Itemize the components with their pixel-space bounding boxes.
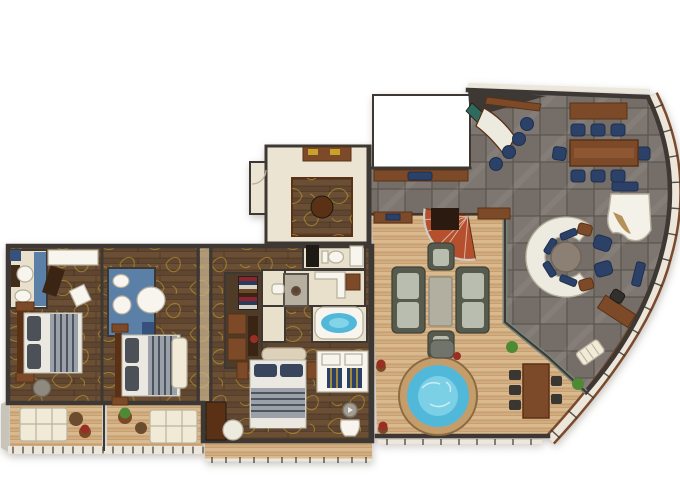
sofa-cushion <box>462 302 484 328</box>
outdoor-chair <box>509 385 521 395</box>
basin-sink <box>113 296 131 314</box>
dining-chair <box>571 170 585 182</box>
floor-plan-image <box>0 0 680 486</box>
tub-chair <box>341 420 360 436</box>
pillow <box>280 364 303 377</box>
guest-bed-2 <box>115 333 180 397</box>
outdoor-table <box>523 364 549 418</box>
sideboard-item <box>386 214 400 220</box>
toilet <box>329 251 344 263</box>
powder-vanity <box>350 246 363 266</box>
stool-cushion <box>347 368 362 388</box>
master-vanity <box>317 351 368 392</box>
dining-chair <box>637 147 650 160</box>
dining-chair <box>591 170 605 182</box>
dining-chair <box>571 124 585 136</box>
foyer-closet-floor <box>250 162 266 214</box>
dining-table-top <box>574 148 634 158</box>
foyer-sideboard-gold-item <box>308 149 318 155</box>
master-bed <box>250 348 306 428</box>
toilet <box>113 275 129 288</box>
hall-door-panel <box>272 284 284 294</box>
green-plant <box>572 378 584 390</box>
sofa-left <box>392 267 425 333</box>
sofa-cushion <box>397 273 419 299</box>
desk-chair <box>223 420 243 440</box>
sofa-cushion <box>397 302 419 328</box>
toilet <box>15 290 31 302</box>
round-coffee-table <box>551 242 581 272</box>
hallway-runner <box>200 248 209 401</box>
master-desk <box>206 402 226 440</box>
coffee-table <box>429 277 452 326</box>
entry-door-mat <box>306 245 319 267</box>
pillow <box>27 316 41 341</box>
clothes-item <box>239 277 257 281</box>
writing-desk <box>172 338 187 388</box>
nightstand <box>112 324 128 332</box>
floor-plan-page <box>0 0 680 486</box>
bathroom-shelf <box>346 274 360 290</box>
outdoor-chair <box>551 394 562 404</box>
stair-landing <box>431 208 459 230</box>
clothes-item <box>239 285 257 289</box>
sun-lounger <box>20 408 67 441</box>
green-plant <box>506 341 518 353</box>
clothes-item <box>239 305 257 309</box>
stool-cushion <box>327 368 342 388</box>
galley-void <box>373 95 470 168</box>
bar-stool <box>521 118 534 131</box>
hot-tub-water-light <box>418 376 458 416</box>
bed-foot-fold <box>251 418 305 428</box>
hanging-clothes <box>239 277 257 309</box>
clothes-item <box>239 297 257 301</box>
headboard <box>262 348 306 361</box>
armchair-top <box>428 243 454 270</box>
toilet-tank <box>322 251 328 263</box>
balcony-table <box>135 422 147 434</box>
pillow <box>254 364 277 377</box>
pillow <box>125 338 139 363</box>
clothes-item <box>239 293 257 297</box>
clothes-item <box>239 281 257 285</box>
dining-sideboard <box>570 103 627 119</box>
corner-shower <box>137 287 165 313</box>
pillow <box>27 344 41 369</box>
closet-counter <box>48 250 98 265</box>
deck-bench <box>430 340 454 358</box>
foyer-sideboard-gold-item-2 <box>330 149 340 155</box>
stair-sideboard <box>478 208 510 219</box>
bath-rug <box>291 286 301 296</box>
nightstand <box>16 373 34 382</box>
outdoor-chair <box>509 400 521 410</box>
bar-stool <box>490 158 503 171</box>
dining-chair <box>552 146 567 161</box>
closet-dresser <box>228 338 246 360</box>
master-balcony-floor <box>205 443 372 461</box>
jacuzzi-tub-water-light <box>329 318 349 328</box>
tub-room <box>315 307 363 339</box>
bath-blue-panel <box>34 252 46 306</box>
vanity-sink <box>322 354 340 365</box>
vanity-stool <box>327 368 342 388</box>
bar-stool <box>503 146 516 159</box>
closet-dresser <box>228 314 246 334</box>
bath-blue-block <box>10 250 21 261</box>
nightstand <box>112 397 128 405</box>
piano-bench <box>612 182 638 191</box>
vanity-stool <box>347 368 362 388</box>
sofa-right <box>456 267 489 333</box>
outdoor-chair <box>551 376 562 386</box>
headboard <box>115 333 122 397</box>
clothes-item <box>239 289 257 293</box>
nightstand <box>307 362 318 379</box>
dining-chair <box>611 170 625 182</box>
armchair-cushion <box>433 249 449 266</box>
clothes-item <box>239 301 257 305</box>
red-plant <box>81 425 90 434</box>
red-plant <box>379 422 388 431</box>
round-ottoman <box>34 380 51 397</box>
headboard <box>17 311 24 373</box>
sofa-cushion <box>462 273 484 299</box>
outdoor-chair <box>509 370 521 380</box>
balcony-table <box>69 412 83 426</box>
vanity-sink <box>345 354 362 365</box>
nightstand <box>16 302 34 311</box>
hull-wedge-gray <box>1 400 9 452</box>
galley-sink <box>408 172 432 180</box>
dining-chair <box>611 124 625 136</box>
nightstand <box>237 362 248 379</box>
suite-floor-plan <box>1 85 680 463</box>
green-plant <box>120 408 131 419</box>
guest-bed-1 <box>17 311 82 373</box>
red-plant <box>453 352 461 360</box>
bath-blue-block <box>142 322 154 335</box>
basin-sink <box>17 266 33 282</box>
red-plant <box>377 360 386 369</box>
dining-chair <box>591 124 605 136</box>
sun-lounger <box>150 410 197 443</box>
red-plant <box>250 335 258 343</box>
foyer-round-table <box>311 196 333 218</box>
balcony-railing-band <box>8 446 204 454</box>
bar-stool <box>513 133 526 146</box>
pillow <box>125 366 139 391</box>
